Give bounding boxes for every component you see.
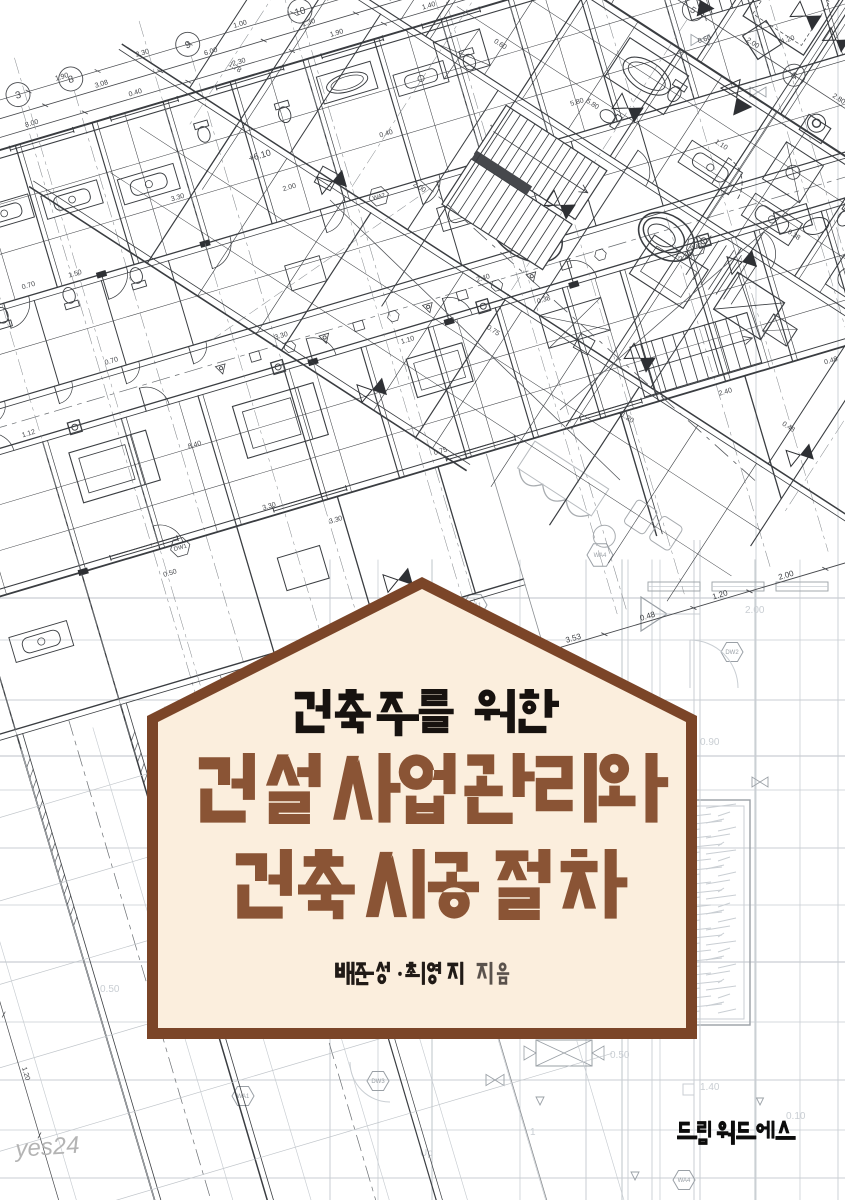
svg-text:2.00: 2.00 bbox=[745, 605, 765, 616]
svg-text:0.50: 0.50 bbox=[610, 1050, 630, 1061]
svg-text:yes24: yes24 bbox=[13, 1132, 81, 1164]
svg-text:0.90: 0.90 bbox=[700, 737, 720, 748]
svg-text:1: 1 bbox=[530, 1127, 536, 1138]
svg-text:DW2: DW2 bbox=[725, 650, 739, 656]
svg-text:WA4: WA4 bbox=[678, 1178, 691, 1184]
svg-text:1.40: 1.40 bbox=[700, 1082, 720, 1093]
svg-text:0.50: 0.50 bbox=[100, 984, 120, 995]
svg-text:DW3: DW3 bbox=[371, 1079, 385, 1085]
svg-text:WA4: WA4 bbox=[594, 553, 607, 559]
svg-text:0.10: 0.10 bbox=[786, 1111, 806, 1122]
